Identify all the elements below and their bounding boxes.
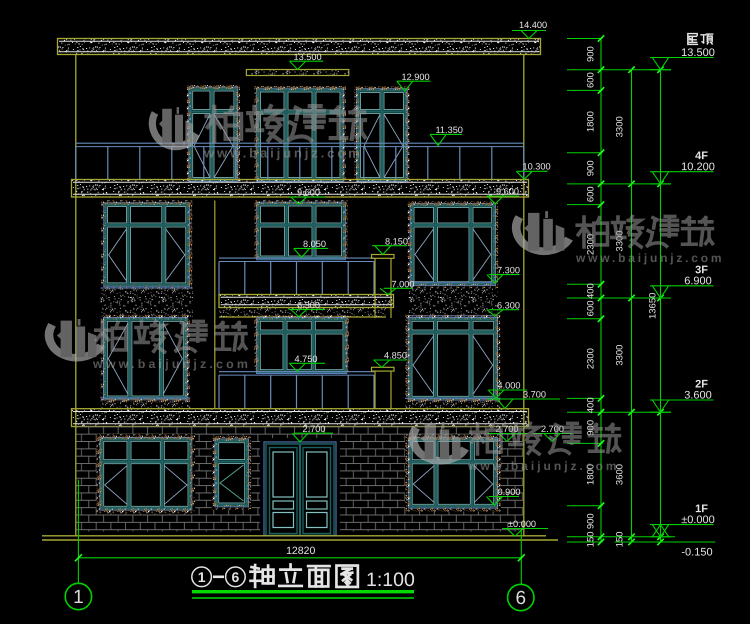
svg-text:2.700: 2.700 (302, 424, 325, 434)
svg-text:6: 6 (516, 588, 527, 609)
svg-text:1: 1 (73, 587, 84, 608)
svg-text:www.baijunjz.com: www.baijunjz.com (575, 251, 724, 265)
svg-text:www.baijunjz.com: www.baijunjz.com (203, 145, 363, 160)
svg-text:0.900: 0.900 (497, 487, 520, 497)
svg-text:±0.000: ±0.000 (508, 519, 536, 529)
svg-text:4.750: 4.750 (294, 354, 317, 364)
svg-text:6: 6 (231, 569, 239, 585)
svg-text:400: 400 (586, 397, 597, 413)
svg-text:12.900: 12.900 (401, 72, 429, 82)
svg-text:400: 400 (586, 283, 597, 299)
svg-text:7.000: 7.000 (391, 279, 414, 289)
svg-text:12820: 12820 (286, 545, 315, 557)
svg-text:www.baijunjz.com: www.baijunjz.com (92, 357, 251, 371)
svg-text:600: 600 (586, 300, 597, 316)
svg-text:9.600: 9.600 (297, 188, 320, 198)
svg-text:6.300: 6.300 (497, 301, 520, 311)
svg-text:2300: 2300 (586, 348, 597, 369)
svg-text:900: 900 (586, 513, 597, 529)
svg-text:13.500: 13.500 (293, 52, 321, 62)
svg-text:1: 1 (198, 569, 206, 585)
svg-text:8.050: 8.050 (303, 239, 326, 249)
svg-text:150: 150 (615, 531, 626, 547)
svg-text:1:100: 1:100 (366, 569, 415, 591)
svg-text:10.300: 10.300 (522, 162, 550, 172)
svg-text:4.000: 4.000 (497, 381, 520, 391)
svg-text:900: 900 (586, 160, 597, 176)
svg-text:7.300: 7.300 (497, 265, 520, 275)
svg-text:1800: 1800 (586, 111, 597, 132)
svg-text:8.150: 8.150 (385, 237, 408, 247)
svg-text:13650: 13650 (648, 293, 659, 319)
svg-text:900: 900 (586, 46, 597, 62)
svg-text:6.300: 6.300 (297, 300, 320, 310)
svg-text:14.400: 14.400 (519, 20, 547, 30)
svg-text:11.350: 11.350 (435, 125, 462, 135)
svg-text:3.700: 3.700 (523, 390, 546, 400)
svg-text:www.baijunjz.com: www.baijunjz.com (467, 459, 620, 473)
svg-text:600: 600 (586, 186, 597, 202)
svg-text:3300: 3300 (615, 345, 626, 366)
svg-text:600: 600 (586, 72, 597, 88)
svg-text:150: 150 (586, 531, 597, 547)
svg-text:9.600: 9.600 (496, 187, 519, 197)
svg-text:3300: 3300 (615, 116, 626, 137)
svg-text:-0.150: -0.150 (681, 546, 712, 558)
svg-text:4.850: 4.850 (384, 351, 407, 361)
